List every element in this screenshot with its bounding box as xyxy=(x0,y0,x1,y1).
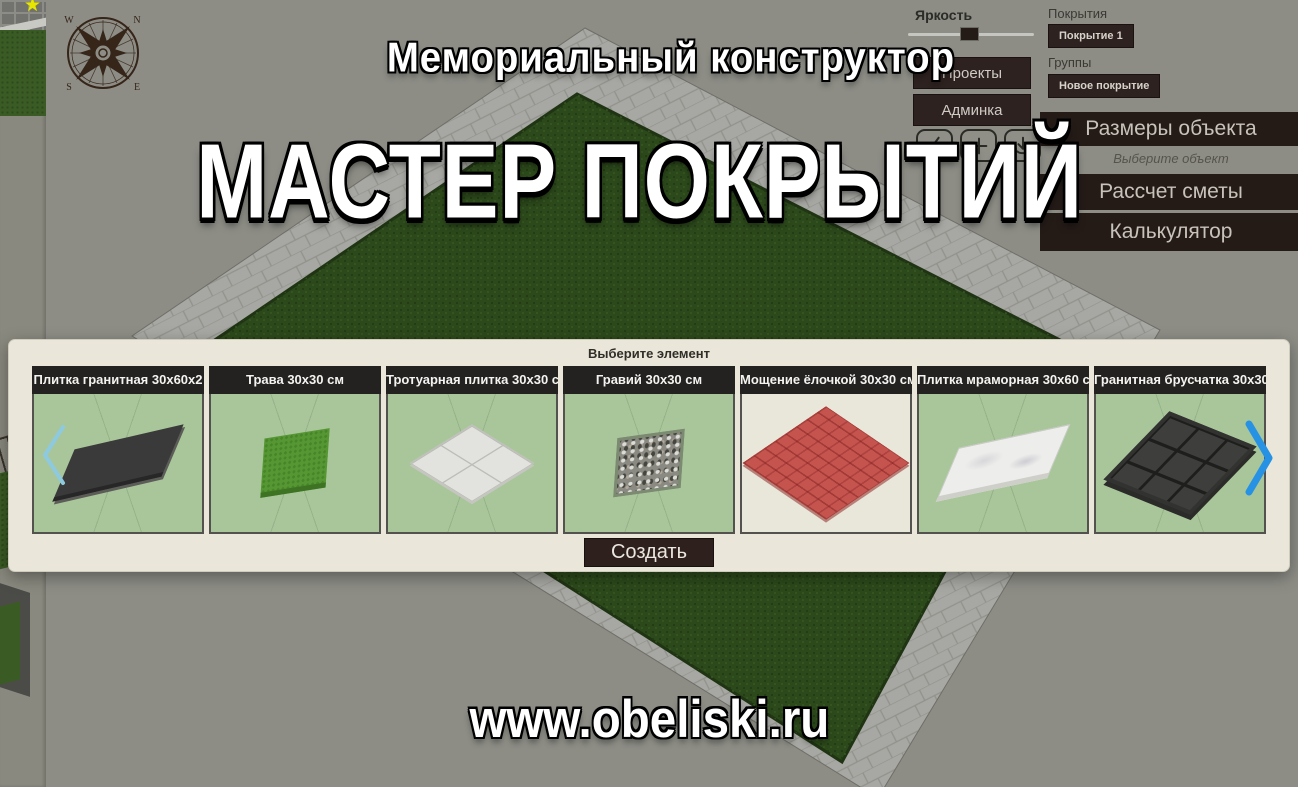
download-button[interactable] xyxy=(1004,129,1041,162)
compass-w-label: W xyxy=(64,15,74,26)
card-label: Тротуарная плитка 30х30 см xyxy=(386,366,558,394)
prev-elements-button[interactable] xyxy=(39,422,67,491)
plus-icon xyxy=(968,135,990,157)
compass-n-label: N xyxy=(133,15,140,26)
groups-label: Группы xyxy=(1048,55,1091,70)
admin-button[interactable]: Админка xyxy=(913,94,1031,126)
coatings-label: Покрытия xyxy=(1048,6,1107,21)
compass-icon: W N S E xyxy=(56,6,150,100)
strip-grass-fragment xyxy=(0,30,46,116)
card-preview xyxy=(209,394,381,534)
estimate-header[interactable]: Рассчет сметы xyxy=(1040,174,1298,210)
new-coating-button[interactable]: Новое покрытие xyxy=(1048,74,1160,98)
card-preview xyxy=(740,394,912,534)
element-card-granite-pavers[interactable]: Гранитная брусчатка 30х30 xyxy=(1094,366,1266,534)
granite-slab-shape xyxy=(52,424,183,502)
chevron-right-icon xyxy=(1243,418,1275,498)
card-preview xyxy=(386,394,558,534)
card-label: Гранитная брусчатка 30х30 xyxy=(1094,366,1266,394)
grass-tile-shape xyxy=(260,428,329,498)
picker-header: Выберите элемент xyxy=(9,346,1289,361)
calculator-header[interactable]: Калькулятор xyxy=(1040,213,1298,251)
element-card-marble[interactable]: Плитка мраморная 30х60 см xyxy=(917,366,1089,534)
clear-scene-button[interactable] xyxy=(916,129,953,162)
sidewalk-tile-shape xyxy=(410,424,534,501)
gravel-tile-shape xyxy=(613,429,684,498)
brightness-slider[interactable] xyxy=(908,33,1034,36)
element-card-grass[interactable]: Трава 30х30 см xyxy=(209,366,381,534)
element-picker-dialog: Выберите элемент Плитка гранитная 30х60х… xyxy=(8,339,1290,572)
card-label: Плитка мраморная 30х60 см xyxy=(917,366,1089,394)
projects-button[interactable]: Проекты xyxy=(913,57,1031,89)
element-card-gravel[interactable]: Гравий 30х30 см xyxy=(563,366,735,534)
marble-slab-shape xyxy=(936,424,1070,502)
next-elements-button[interactable] xyxy=(1243,418,1275,501)
coating-1-button[interactable]: Покрытие 1 xyxy=(1048,24,1134,48)
download-icon xyxy=(1012,135,1034,157)
compass-e-label: E xyxy=(134,82,140,93)
card-label: Гравий 30х30 см xyxy=(563,366,735,394)
card-preview xyxy=(563,394,735,534)
granite-pavers-shape xyxy=(1103,411,1256,514)
chevron-left-icon xyxy=(39,422,67,488)
coatings-panel: Покрытия Покрытие 1 Группы Новое покрыти… xyxy=(1040,0,1298,300)
strip-grass-fragment xyxy=(0,602,20,685)
brightness-slider-thumb[interactable] xyxy=(960,27,979,41)
element-card-sidewalk-tile[interactable]: Тротуарная плитка 30х30 см xyxy=(386,366,558,534)
add-object-button[interactable] xyxy=(960,129,997,162)
card-preview xyxy=(917,394,1089,534)
card-label: Трава 30х30 см xyxy=(209,366,381,394)
card-preview xyxy=(1094,394,1266,534)
select-object-hint: Выберите объект xyxy=(1040,149,1298,169)
compass-s-label: S xyxy=(66,82,72,93)
scene-tools xyxy=(916,129,1041,162)
object-sizes-header[interactable]: Размеры объекта xyxy=(1040,112,1298,146)
card-label: Мощение ёлочкой 30х30 см xyxy=(740,366,912,394)
element-card-herringbone[interactable]: Мощение ёлочкой 30х30 см xyxy=(740,366,912,534)
card-label: Плитка гранитная 30х60х2 xyxy=(32,366,204,394)
brightness-label: Яркость xyxy=(915,7,972,23)
element-cards-row: Плитка гранитная 30х60х2 Трава 30х30 см … xyxy=(9,366,1289,534)
yellow-marker-icon: ★ xyxy=(24,0,41,17)
broom-icon xyxy=(924,135,946,157)
herringbone-tile-shape xyxy=(743,406,910,519)
create-button[interactable]: Создать xyxy=(584,538,714,567)
